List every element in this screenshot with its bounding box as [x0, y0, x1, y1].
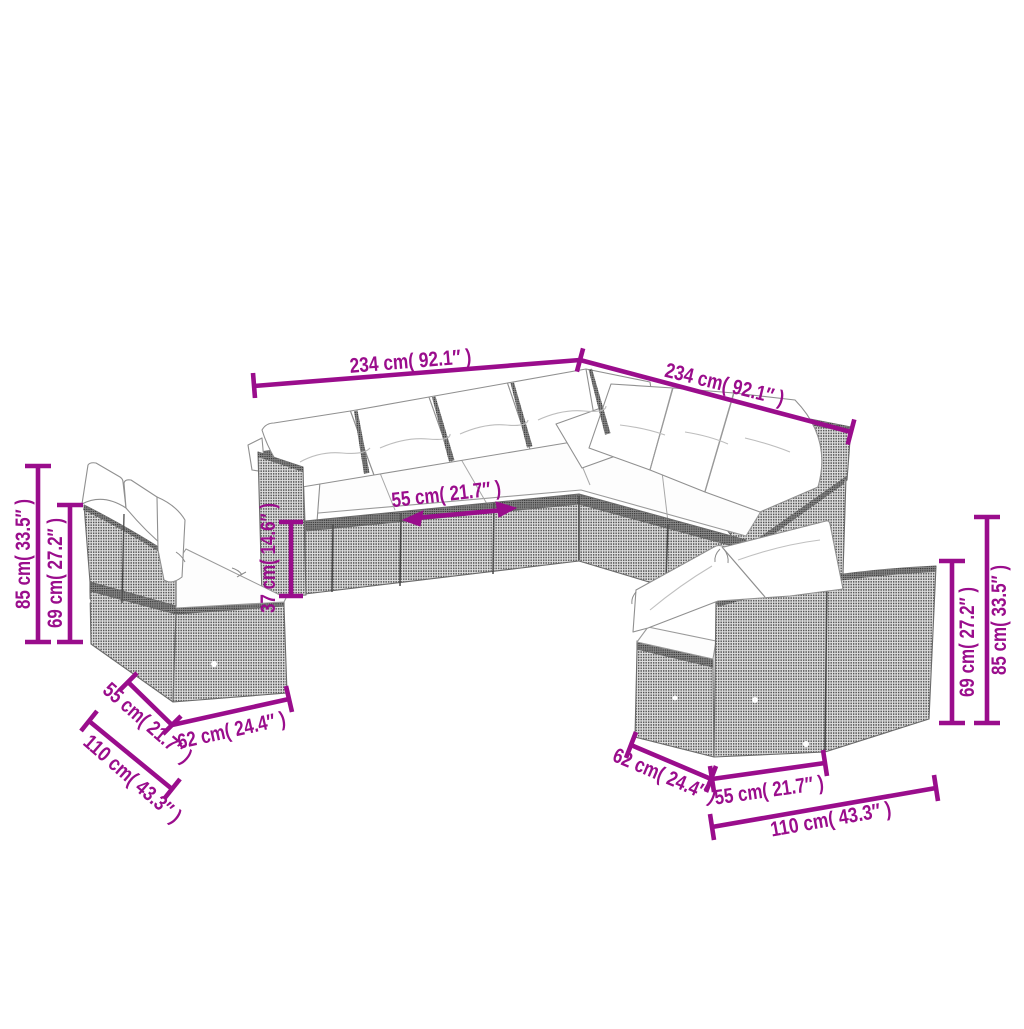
- svg-text:69 cm( 27.2″ ): 69 cm( 27.2″ ): [44, 518, 67, 628]
- svg-text:85 cm( 33.5″ ): 85 cm( 33.5″ ): [988, 565, 1011, 675]
- svg-text:85 cm( 33.5″ ): 85 cm( 33.5″ ): [12, 499, 35, 609]
- svg-text:37 cm( 14.6″ ): 37 cm( 14.6″ ): [257, 503, 280, 613]
- svg-text:69 cm( 27.2″ ): 69 cm( 27.2″ ): [956, 587, 979, 697]
